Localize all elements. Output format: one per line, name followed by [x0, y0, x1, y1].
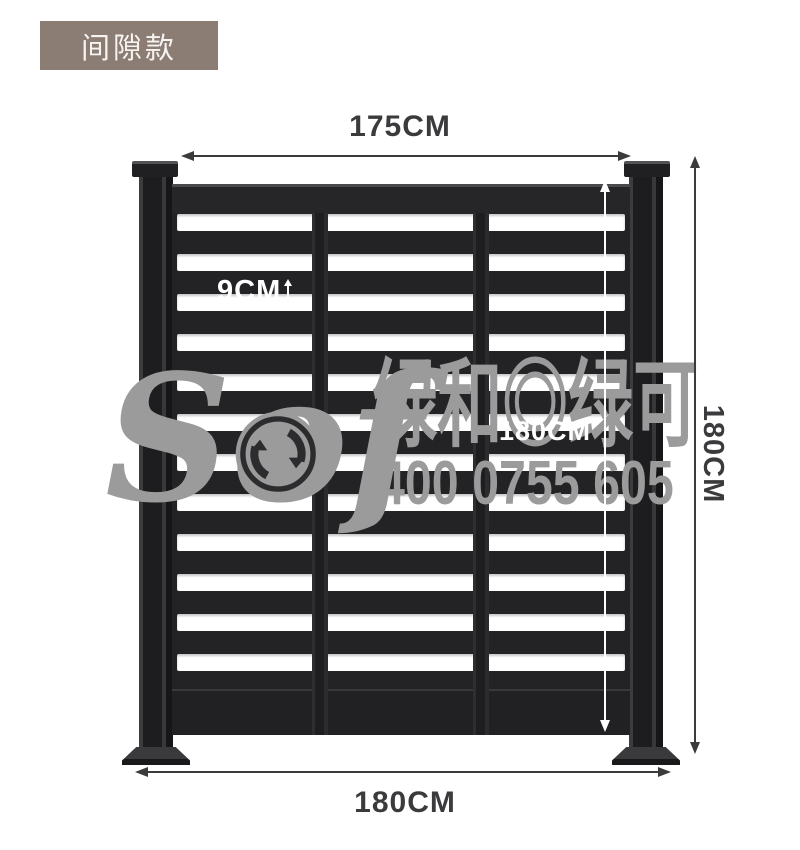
right-base-plate: [612, 747, 680, 765]
dim-base-width-line: [138, 771, 658, 773]
slat-gap-row: [177, 574, 625, 591]
watermark-phone: 400 0755 605: [378, 451, 674, 516]
style-badge: 间隙款: [40, 21, 218, 70]
dim-inner-height-line: [604, 186, 606, 724]
dim-top-width-line: [184, 155, 618, 157]
slat-gap-row: [177, 214, 625, 231]
arrow-up-icon: [690, 156, 700, 168]
right-post-cap: [624, 161, 670, 177]
arrow-up-icon: [600, 180, 610, 192]
arrow-left-icon: [181, 151, 194, 161]
arrow-right-icon: [618, 151, 631, 161]
recycle-circle-icon: [233, 409, 323, 499]
arrow-up-icon: [284, 279, 292, 286]
fence-top-rail: [172, 184, 630, 214]
fence-bottom-rail: [172, 689, 630, 735]
dim-slat-gap-label: 9CM: [217, 275, 281, 308]
slat-gap-row: [177, 614, 625, 631]
slat-gap-row: [177, 254, 625, 271]
dim-outer-height-label: 180CM: [697, 404, 729, 504]
left-base-plate: [122, 747, 190, 765]
dim-inner-height-label: 180CM: [499, 416, 591, 447]
slat-gap-row: [177, 654, 625, 671]
arrow-down-icon: [690, 742, 700, 754]
dim-outer-height-line: [694, 160, 696, 746]
arrow-left-icon: [135, 767, 148, 777]
arrow-down-icon: [284, 304, 292, 311]
left-post-cap: [132, 161, 178, 177]
dim-base-width-label: 180CM: [305, 786, 505, 820]
dim-top-width-label: 175CM: [300, 110, 500, 144]
arrow-down-icon: [600, 720, 610, 732]
arrow-right-icon: [658, 767, 671, 777]
product-dimension-diagram: 间隙款 Sof 绿和◎绿可 400 0755 605 175CM 9CM 180…: [0, 0, 800, 850]
